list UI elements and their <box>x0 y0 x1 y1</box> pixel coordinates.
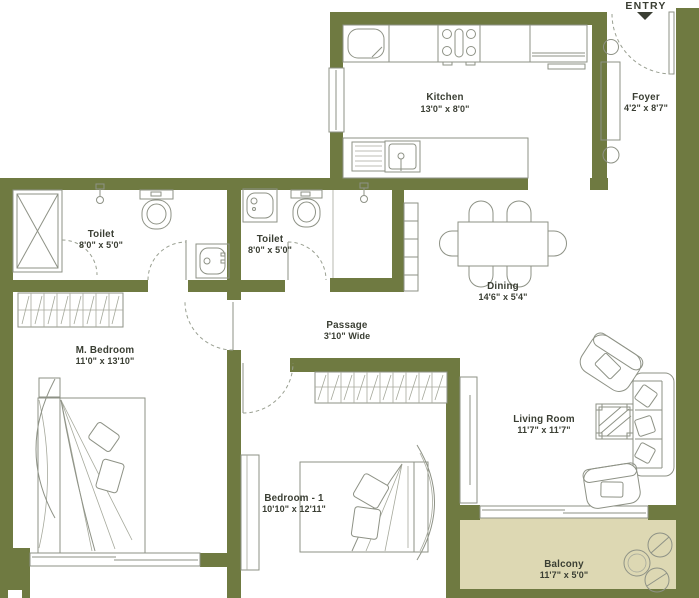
toilet1-basin-icon <box>196 244 229 278</box>
wall-toilet2-bottom <box>227 280 285 292</box>
floor-plan-svg: ENTRY <box>0 0 699 598</box>
coffee-table-icon <box>596 404 633 439</box>
wall-mid-band <box>0 178 528 190</box>
armchair-bottom-icon <box>582 462 642 510</box>
kitchen-label: Kitchen <box>426 92 463 103</box>
entry-marker: ENTRY <box>625 0 666 20</box>
living-dims: 11'7" x 11'7" <box>517 425 570 435</box>
toilet2-door-arc <box>288 242 326 280</box>
bedroom1-furniture <box>241 363 447 570</box>
wall-balcony-bottom <box>446 589 699 598</box>
wall-foyer-left-foot <box>590 178 608 190</box>
mbedroom-furniture <box>18 293 233 553</box>
wall-mbed-right-a <box>227 292 241 300</box>
kitchen-sink-counter <box>343 138 528 178</box>
kitchen-counter-a <box>389 25 438 62</box>
entry-arrow-icon <box>637 12 653 20</box>
foyer-label: Foyer <box>632 92 660 103</box>
mbedroom-label: M. Bedroom <box>76 345 135 356</box>
mbedroom-wardrobe-icon <box>18 293 123 327</box>
sofa-icon <box>633 373 674 476</box>
balcony-label: Balcony <box>544 559 584 570</box>
dining-dims: 14'6" x 5'4" <box>478 292 527 302</box>
toilet2-wc-icon <box>291 190 322 227</box>
dining-set-icon <box>440 201 567 287</box>
wall-kitchen-left-upper <box>330 12 343 70</box>
wall-living-left <box>446 358 460 598</box>
stove-icon <box>438 25 480 65</box>
foyer-dims: 4'2" x 8'7" <box>624 103 668 113</box>
living-label: Living Room <box>513 414 575 425</box>
toilet1-wc-icon <box>140 190 173 229</box>
toilet1-label: Toilet <box>88 229 115 240</box>
toilet2-label: Toilet <box>257 234 284 245</box>
passage-shelf-icon <box>404 203 418 291</box>
bedroom1-dresser-icon <box>241 455 259 570</box>
mbedroom-door-arc <box>185 302 233 350</box>
entry-door-arc <box>612 14 672 74</box>
dining-table <box>458 222 548 266</box>
kitchen-appliance-icon <box>348 29 384 58</box>
wall-mbed-right-b <box>227 350 241 598</box>
bedroom1-wardrobe-icon <box>315 372 447 403</box>
kitchen-fixtures <box>343 25 587 178</box>
shower-area-icon <box>13 190 62 272</box>
sink-icon <box>352 141 420 172</box>
kitchen-window-icon <box>329 68 344 132</box>
wall-kitchen-top <box>330 12 607 25</box>
bedroom1-dims: 10'10" x 12'11" <box>262 504 326 514</box>
wall-balcony-top-left <box>446 505 480 520</box>
dining-label: Dining <box>487 281 519 292</box>
wall-notch <box>8 590 22 598</box>
wall-mbed-bottom <box>200 553 227 567</box>
fridge-icon <box>530 25 587 69</box>
entry-door-leaf <box>669 12 674 74</box>
mbedroom-dims: 11'0" x 13'10" <box>76 356 135 366</box>
kitchen-counter-b <box>480 25 530 62</box>
wall-bedroom1-top <box>290 358 460 372</box>
toilet2-basin-icon <box>243 189 277 222</box>
toilet1-fixtures <box>13 184 229 280</box>
mbedroom-bed-icon <box>36 378 145 553</box>
bedroom1-door-arc <box>243 363 293 413</box>
toilet1-door-arc <box>148 242 186 280</box>
passage-dims: 3'10" Wide <box>324 331 370 341</box>
wall-shower-right <box>392 178 404 292</box>
wall-toilet1-bottom-b <box>188 280 227 292</box>
passage-label: Passage <box>326 320 368 331</box>
wall-toilet1-bottom-a <box>10 280 148 292</box>
wall-left <box>0 178 13 550</box>
mbedroom-window-icon <box>30 553 200 566</box>
entry-label: ENTRY <box>625 0 666 12</box>
toilet2-dims: 8'0" x 5'0" <box>248 245 292 255</box>
tv-unit-icon <box>460 377 477 503</box>
wall-foyer-left <box>592 12 607 178</box>
floor-plan: ENTRY <box>0 0 699 598</box>
balcony-slider-icon <box>480 506 648 518</box>
kitchen-dims: 13'0" x 8'0" <box>420 104 469 114</box>
kitchen-hob-unit <box>343 25 389 62</box>
wall-balcony-top-right <box>648 505 678 520</box>
wall-right <box>676 8 699 598</box>
balcony-dims: 11'7" x 5'0" <box>540 570 589 580</box>
bedroom1-label: Bedroom - 1 <box>264 493 324 504</box>
toilet1-dims: 8'0" x 5'0" <box>79 240 123 250</box>
wall-kitchen-left-lower <box>330 130 343 178</box>
foyer-fixtures <box>601 12 674 163</box>
